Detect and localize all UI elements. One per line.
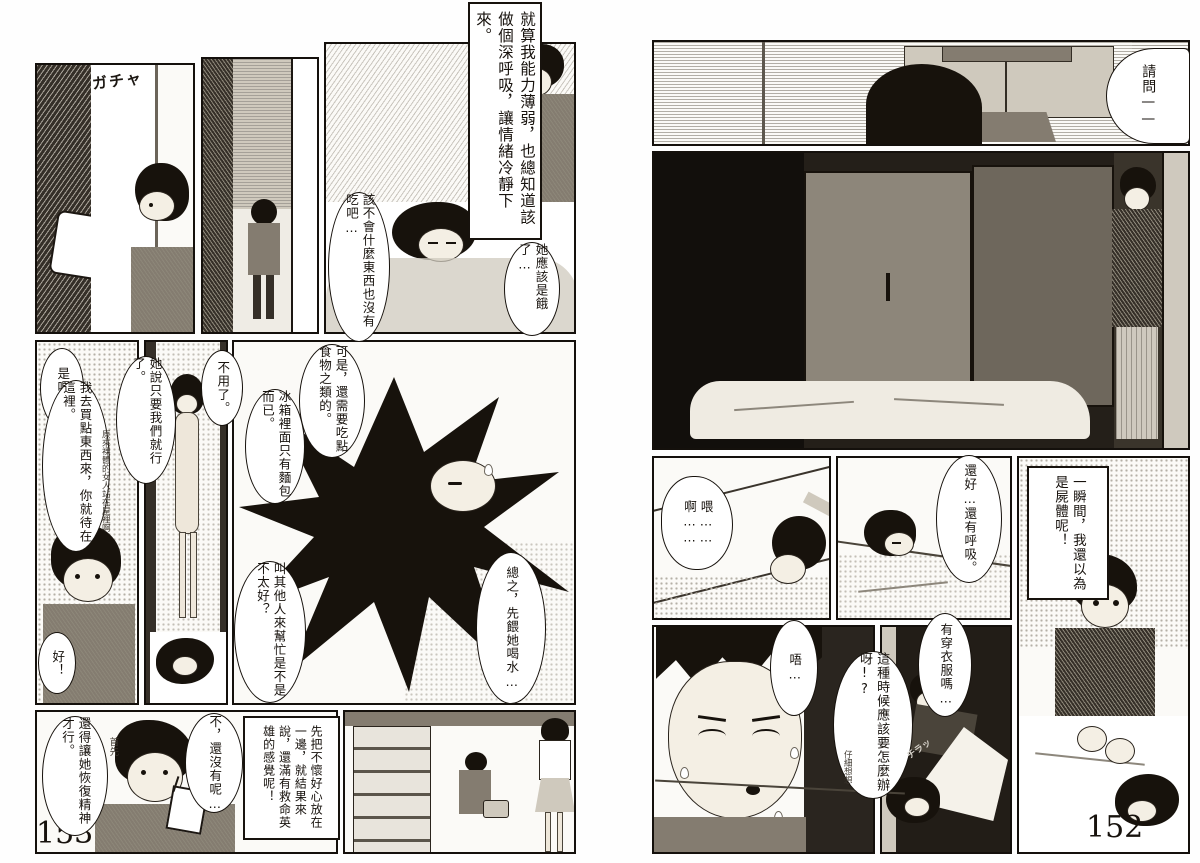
boy-leg [253,275,261,319]
narration-calm-text: 就算我能力薄弱，也總知道該做個深呼吸，讓情緒冷靜下來。 [472,11,538,231]
speech-she-said-bubble: 她說只要我們就行了。 [116,356,176,484]
door-handle [886,273,890,301]
speech-but-food-text: 可是，還需要吃點食物之類的。 [316,345,349,457]
speech-clothes-bubble: 有穿衣服嗎… [918,613,972,717]
girl-shopper-leg [545,812,551,852]
sweat-drop [680,767,689,779]
panel-dark-room [652,151,1190,450]
narration-hero-text: 先把不懷好心放在一邊，就結果來說，還滿有救命英雄的感覺呢！ [260,725,323,831]
shopper-hair [465,752,487,772]
girl-face-bed [418,228,464,262]
handwritten-note: 原來裸體的女人站在屋裡啊 [100,430,116,570]
floor-tone [654,576,831,620]
boy-hair-small [251,199,277,225]
boy-eye [1093,600,1099,606]
thought-not-yet-bubble: 不，還沒有呢… [185,713,243,813]
thought-recover-text: 還得讓她恢復精神才行。 [59,717,92,835]
speech-call-others-bubble: 叫其他人來幫忙是不是不太好？ [234,561,306,703]
thought-recover-bubble: 還得讓她恢復精神才行。 [42,716,108,836]
speech-ok-bubble: 好！ [38,632,76,694]
girl-leg [179,532,186,618]
panel-door-exit [35,63,195,334]
closed-eye [892,542,901,544]
sweat-drop [484,464,493,476]
store-shelf [353,726,431,854]
speech-call-others-text: 叫其他人來幫忙是不是不太好？ [254,562,287,702]
range-hood [942,46,1072,62]
speech-fridge-bubble: 冰箱裡面只有麵包而已。 [245,389,305,504]
speech-breathing-text: 還好…還有呼吸。 [961,464,978,575]
open-mouth [746,785,760,795]
shopping-basket [483,800,509,818]
speech-go-buy-text: 我去買點東西來，你就待在這裡。 [60,381,93,551]
frame-line [762,42,765,146]
visitor-sweater [1112,209,1162,327]
panel-supermarket [343,710,576,854]
worried-eye [752,729,780,743]
speech-what-to-do-text: 這種時候應該要怎麼辦呀!? [856,652,890,798]
girl-body [175,412,199,534]
boy-eye [1113,600,1119,606]
boy-eye [95,574,100,579]
manga-spread: ガチャ 就算我能力薄弱，也總知道該做個深呼吸，讓情緒冷靜下來。 該不會什麼東西也… [0,0,1200,863]
speech-no-need-text: 不用了。 [214,361,231,415]
speech-ugh-bubble: 唔… [770,620,818,716]
narration-corpse-box: 一瞬間，我還以為是屍體呢！ [1027,466,1109,600]
sleeping-girl-face [172,656,198,676]
closed-eye [428,242,438,244]
girl-leg [190,532,197,618]
boy-hand [1105,738,1135,764]
thought-no-food-bubble: 該不會什麼東西也沒有吃吧… [328,192,390,342]
boy-arm [803,492,831,517]
visitor-pants [1116,327,1158,439]
boy-hand [1077,726,1107,752]
speech-water-text: 總之，先餵她喝水… [503,566,520,690]
lying-girl-face [904,797,930,817]
boy-body-small [248,223,280,275]
handwritten-note-text: 原來裸體的女人站在屋裡啊 [100,430,110,532]
thought-no-food-text: 該不會什麼東西也沒有吃吧… [343,193,376,341]
speech-ah-hey-bubble: 啊…… 喂…… [661,476,733,570]
doorway-light [1162,153,1190,450]
closed-eye [446,242,456,244]
speech-ugh-text: 唔… [786,653,803,683]
narration-calm-box: 就算我能力薄弱，也總知道該做個深呼吸，讓情緒冷靜下來。 [468,2,542,240]
page-number-right: 152 [1086,810,1143,845]
speech-she-said-text: 她說只要我們就行了。 [130,357,163,483]
shoulder [654,817,806,854]
girl-shopper-hair [541,718,569,742]
note-first-text: 首先 [107,737,118,756]
speech-clothes-text: 有穿衣服嗎… [937,623,954,707]
narration-hero-box: 先把不懷好心放在一邊，就結果來說，還滿有救命英雄的感覺呢！ [243,716,340,840]
boy-eye [75,574,80,579]
speech-hey-text: 喂…… [697,500,714,546]
speech-ah-text: 啊…… [681,500,698,546]
visitor-face [1124,187,1150,211]
closed-eye [448,482,462,485]
speech-breathing-bubble: 還好…還有呼吸。 [936,455,1002,583]
head-silhouette [866,64,982,146]
girl-shopper-skirt [535,778,575,812]
speech-but-food-bubble: 可是，還需要吃點食物之類的。 [299,344,365,458]
speech-fridge-text: 冰箱裡面只有麵包而已。 [259,390,292,503]
speech-excuse-me-text: 請問—— [1139,64,1157,128]
girl-shopper-top [539,740,571,780]
thought-hungry-text: 她應該是餓了… [516,243,549,335]
hall-doorway [291,59,319,334]
hall-wall-left [203,59,233,334]
sweat-drop [790,747,799,759]
girl-face [176,394,198,414]
thought-hungry-bubble: 她應該是餓了… [504,242,560,336]
speech-water-bubble: 總之，先餵她喝水… [476,552,546,704]
hall-far-wall [233,59,291,209]
boy-face [139,191,175,221]
narration-corpse-text: 一瞬間，我還以為是屍體呢！ [1050,475,1086,591]
closet-door-dark [972,165,1114,407]
boy-eye [141,770,146,775]
girl-shopper-leg [557,812,563,852]
boy-eye [149,203,153,207]
coat-figure [37,65,91,334]
speech-ok-text: 好！ [49,650,66,677]
boy-sweater [1055,628,1155,724]
worried-eye [698,729,726,743]
boy-leg [266,275,274,319]
speech-no-need-bubble: 不用了。 [201,350,243,426]
boy-eye [163,770,168,775]
boy-body [131,247,195,334]
panel-hallway [201,57,319,334]
girl-face [884,532,914,556]
futon [690,381,1090,439]
note-first: 首先 [107,737,121,781]
note-think-text: 仔細想想 [842,750,852,784]
thought-not-yet-text: 不，還沒有呢… [206,715,223,812]
speech-what-to-do-bubble: 這種時候應該要怎麼辦呀!? 仔細想想 [833,651,913,799]
boy-face-tilted [770,554,806,584]
